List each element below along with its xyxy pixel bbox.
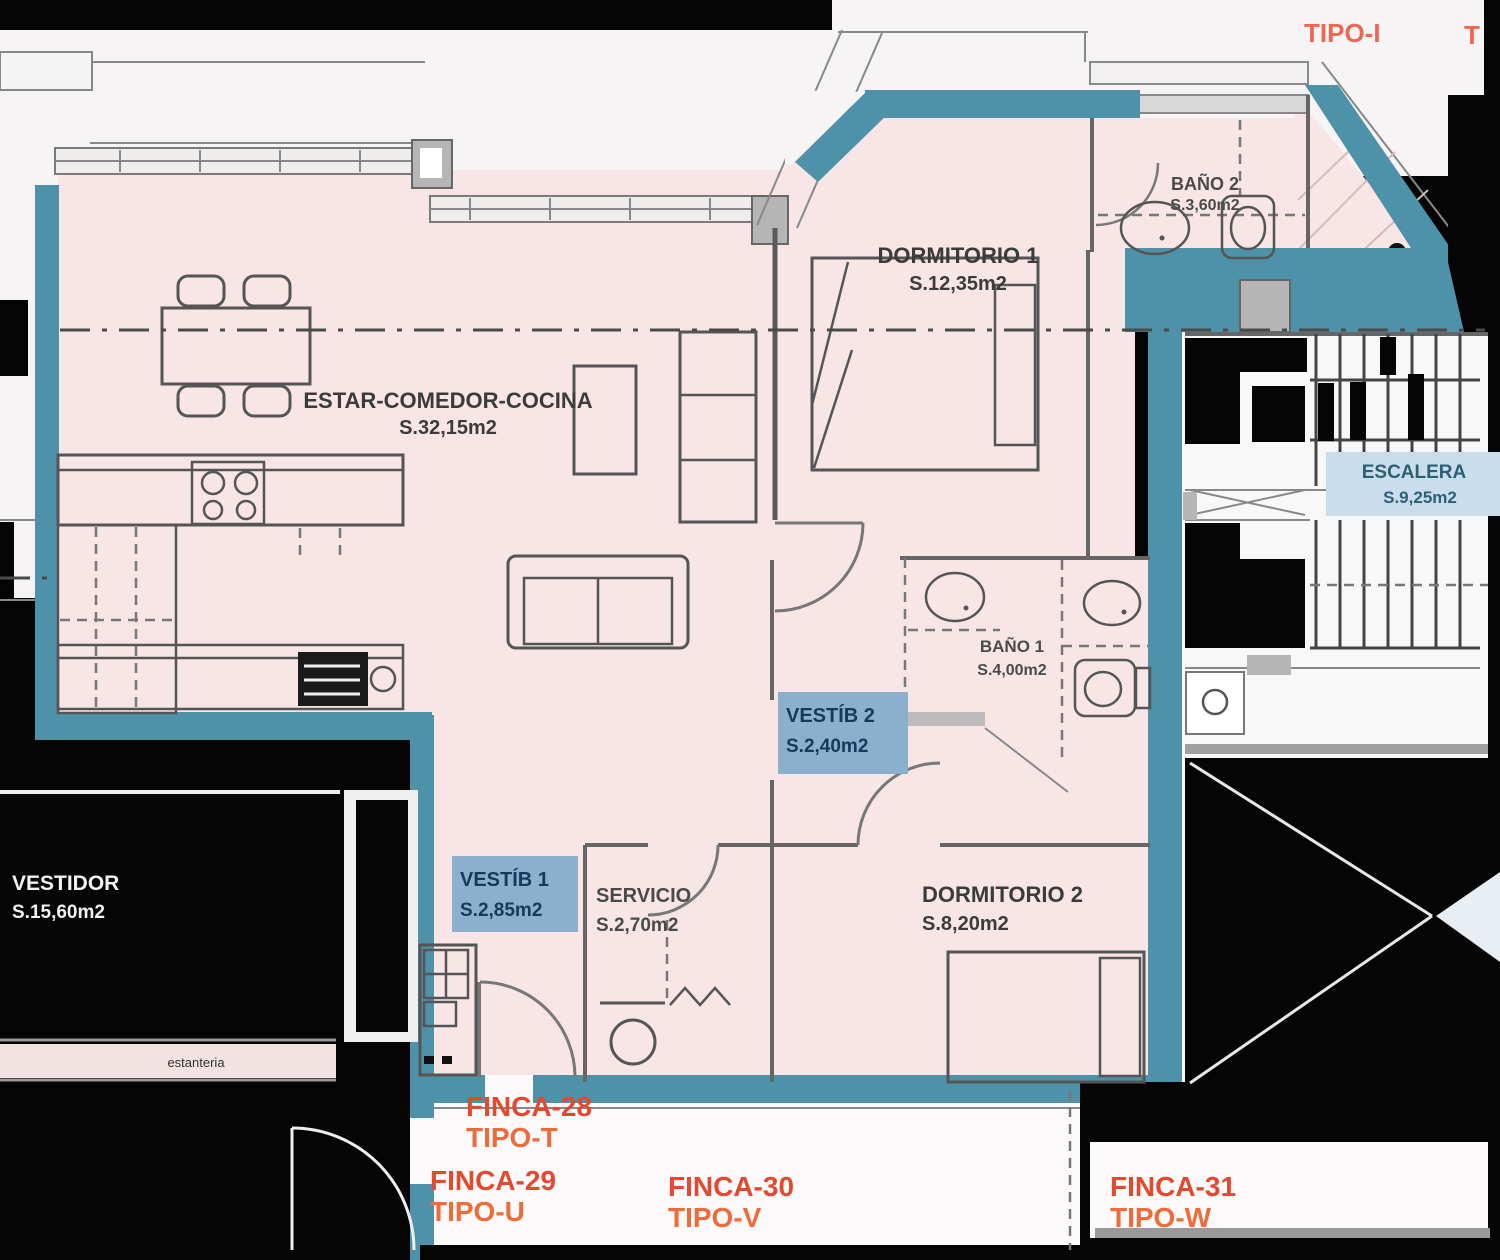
label-estar-name: ESTAR-COMEDOR-COCINA	[303, 388, 592, 413]
label-estanteria: estanteria	[167, 1055, 225, 1070]
bottom-sill	[1095, 1228, 1490, 1238]
patio-shaft	[1185, 744, 1500, 1088]
label-finca28: FINCA-28	[466, 1091, 592, 1122]
pillar	[1240, 280, 1290, 332]
label-escalera-name: ESCALERA	[1362, 462, 1467, 483]
label-dormitorio2-name: DORMITORIO 2	[922, 882, 1083, 907]
label-tipo-i-partial: T	[1464, 20, 1480, 50]
label-vestib1-area: S.2,85m2	[460, 900, 542, 921]
label-tipo-v: TIPO-V	[668, 1202, 762, 1233]
label-finca30: FINCA-30	[668, 1171, 794, 1202]
label-dormitorio2-area: S.8,20m2	[922, 913, 1009, 935]
floor-plan-screenshot: ESTAR-COMEDOR-COCINA S.32,15m2 DORMITORI…	[0, 0, 1500, 1260]
label-servicio-name: SERVICIO	[596, 885, 691, 907]
label-tipo-t: TIPO-T	[466, 1122, 558, 1153]
label-tipo-i: TIPO-I	[1304, 18, 1381, 48]
label-estar-area: S.32,15m2	[399, 417, 497, 439]
label-finca31: FINCA-31	[1110, 1171, 1236, 1202]
label-vestib2-name: VESTÍB 2	[786, 704, 875, 727]
label-vestidor-name: VESTIDOR	[12, 872, 119, 895]
label-banyo1-name: BAÑO 1	[980, 636, 1044, 656]
label-banyo2-name: BAÑO 2	[1171, 173, 1239, 194]
label-vestib1-name: VESTÍB 1	[460, 868, 549, 891]
label-servicio-area: S.2,70m2	[596, 915, 678, 936]
label-vestib2-area: S.2,40m2	[786, 736, 868, 757]
label-banyo2-area: S.3,60m2	[1170, 197, 1239, 214]
label-finca29: FINCA-29	[430, 1165, 556, 1196]
label-vestidor-area: S.15,60m2	[12, 902, 105, 923]
label-tipo-u: TIPO-U	[430, 1196, 525, 1227]
floor-plan-image: ESTAR-COMEDOR-COCINA S.32,15m2 DORMITORI…	[0, 0, 1500, 1260]
label-escalera-area: S.9,25m2	[1383, 488, 1457, 507]
shower-bench	[905, 712, 985, 726]
label-banyo1-area: S.4,00m2	[977, 662, 1046, 679]
label-dormitorio1-name: DORMITORIO 1	[878, 243, 1039, 268]
label-dormitorio1-area: S.12,35m2	[909, 273, 1007, 295]
